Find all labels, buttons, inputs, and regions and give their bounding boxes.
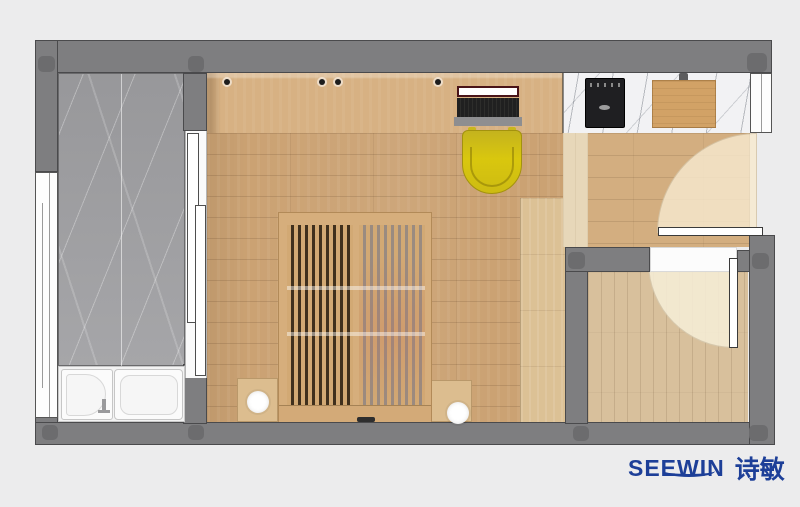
window-mullion	[49, 173, 50, 417]
laptop-palmrest	[454, 117, 522, 126]
hall-door-leaf	[658, 227, 763, 236]
marble-tile-seam	[121, 74, 122, 367]
bottom-wall	[35, 422, 775, 445]
entry-door-leaf	[729, 258, 738, 348]
bed-footboard	[279, 405, 431, 422]
wall-column-icon	[188, 56, 204, 72]
brand-logo-swoosh-icon	[663, 465, 715, 477]
wall-column-icon	[568, 252, 585, 269]
bath-area	[58, 366, 185, 422]
desk-chair-seat	[470, 147, 514, 187]
bed-footboard-notch	[357, 417, 375, 422]
window-mullion	[761, 74, 762, 132]
bed-slats-tint	[359, 225, 425, 405]
window-icon	[35, 172, 58, 418]
wall-column-icon	[188, 425, 204, 440]
mid-vertical-wall	[565, 247, 588, 424]
laptop-keyboard	[457, 98, 519, 117]
bathtub-basin	[120, 375, 178, 415]
bathroom-marble-floor	[58, 73, 185, 366]
slatted-bed-icon	[278, 212, 432, 422]
cooktop-knobs	[590, 83, 621, 87]
cutting-board-icon	[652, 80, 716, 128]
wall-column-icon	[749, 425, 768, 441]
bed-slats-left	[287, 225, 353, 405]
bed-slat-break	[287, 332, 425, 336]
sliding-door-panel	[195, 205, 206, 376]
cabinet-knob-icon	[224, 79, 230, 85]
hall-pale-strip	[563, 133, 588, 247]
bed-slats-right	[359, 225, 425, 405]
cabinet-knob-icon	[435, 79, 441, 85]
wall-pier-bathroom	[183, 73, 207, 131]
lamp-icon	[247, 391, 269, 413]
bathtub-icon	[114, 369, 183, 420]
window-mullion	[42, 203, 43, 388]
cooktop-icon	[585, 78, 625, 128]
wall-column-icon	[42, 425, 58, 440]
sliding-door-icon	[185, 131, 207, 378]
wall-column-icon	[38, 56, 55, 72]
desk-chair-icon	[462, 130, 522, 194]
door-opening	[650, 247, 737, 272]
bed-slat-break	[287, 286, 425, 290]
top-wall	[35, 40, 772, 73]
wall-column-icon	[752, 253, 769, 269]
faucet-icon	[98, 410, 110, 413]
floor-plan-canvas: SEEWIN 诗敏	[0, 0, 800, 507]
wall-column-icon	[747, 53, 767, 72]
brand-logo-cjk: 诗敏	[735, 450, 785, 486]
side-cabinet-band	[520, 198, 565, 422]
window-icon	[750, 73, 772, 133]
cooktop-burner	[599, 105, 610, 110]
laptop-icon	[457, 86, 519, 97]
lamp-icon	[447, 402, 469, 424]
wall-column-icon	[573, 426, 589, 441]
cabinet-knob-icon	[319, 79, 325, 85]
cabinet-knob-icon	[335, 79, 341, 85]
